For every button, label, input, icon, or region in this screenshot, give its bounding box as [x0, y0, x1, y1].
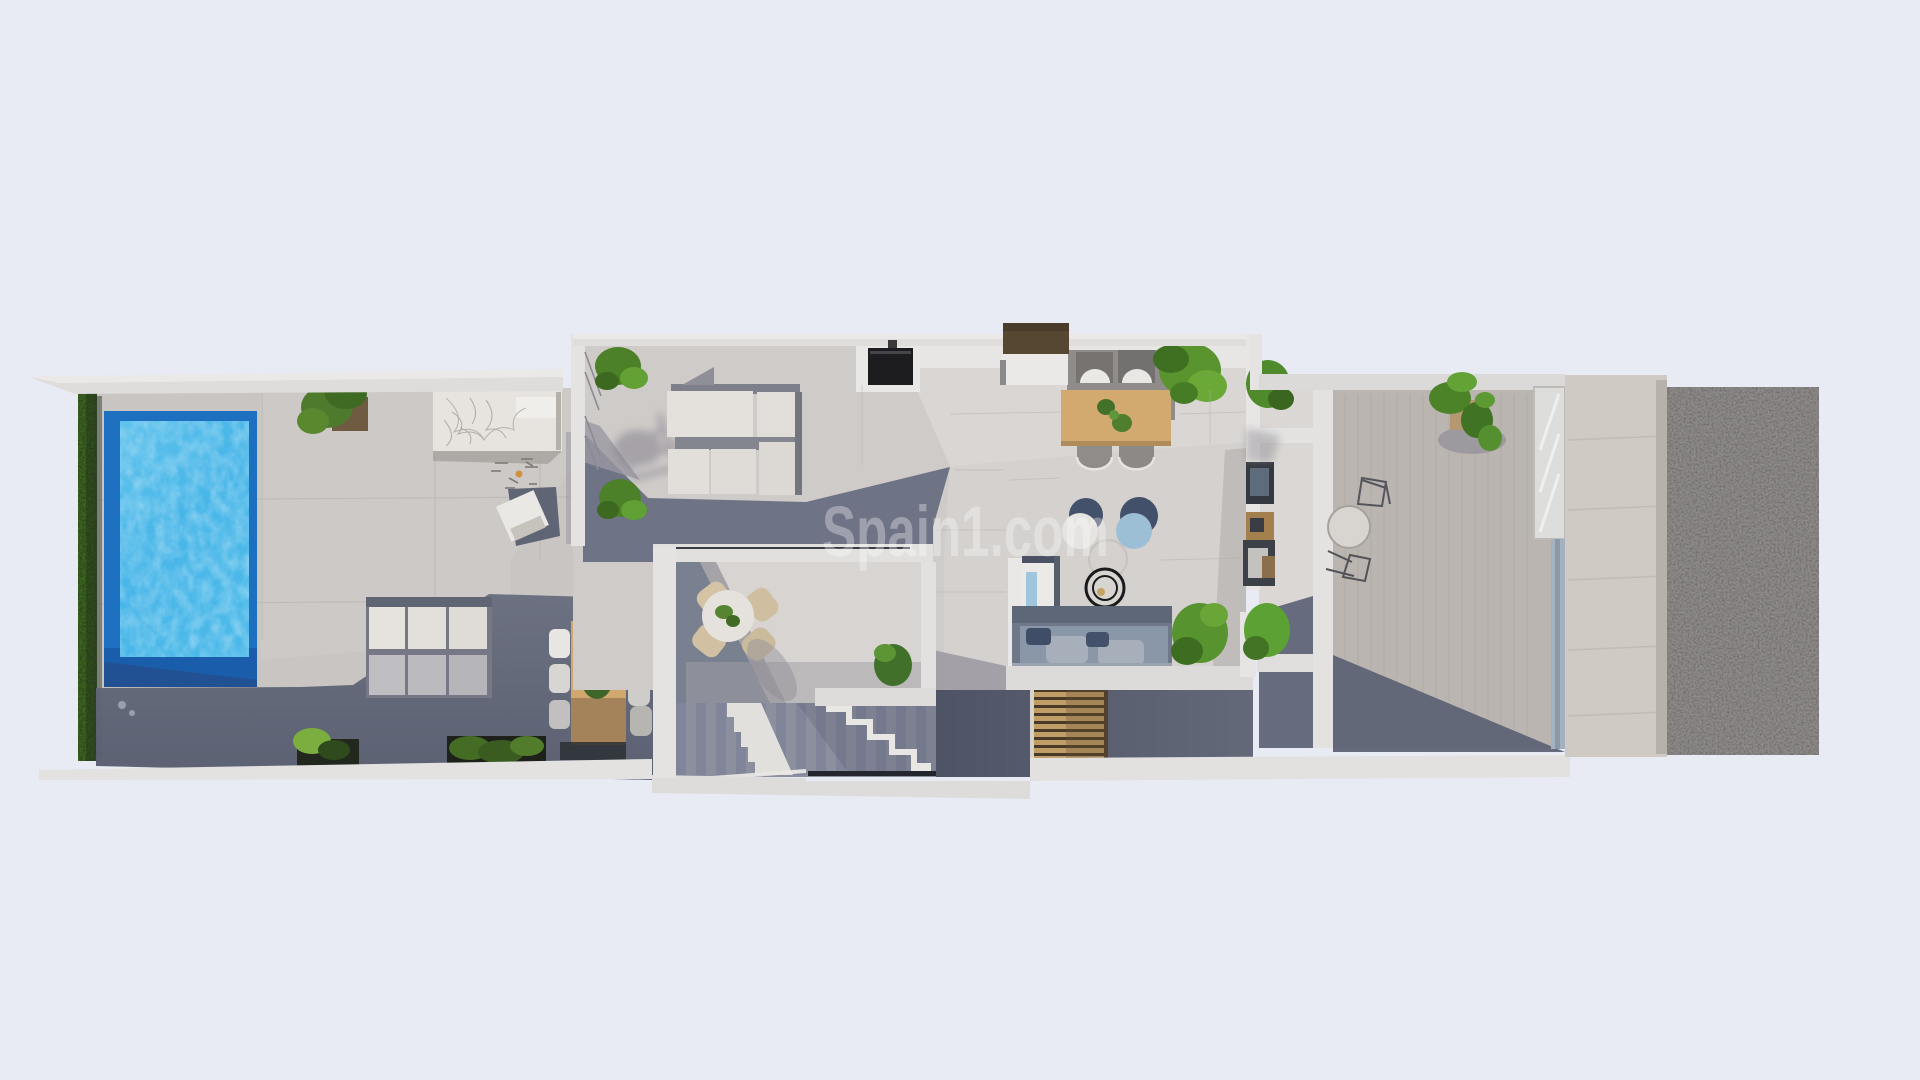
svg-text:Spain1.com: Spain1.com [822, 493, 1109, 572]
